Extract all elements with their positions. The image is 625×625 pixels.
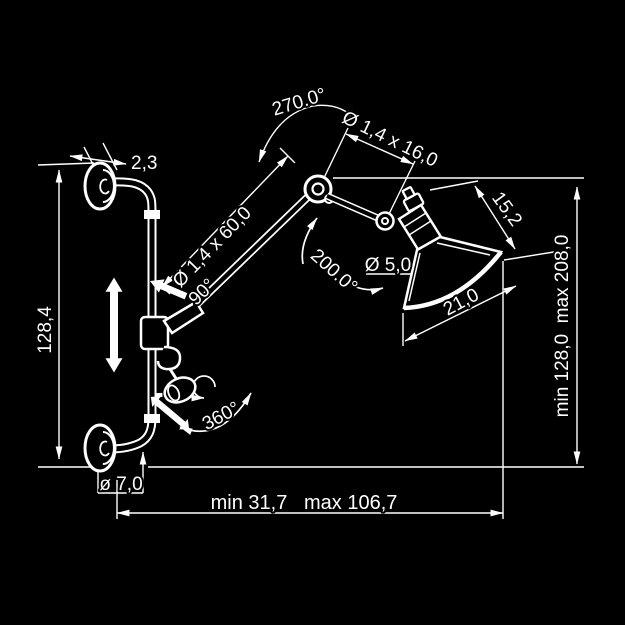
label-tube-diameter: ø 7,0: [99, 474, 142, 495]
label-swivel-angle: 360°: [199, 398, 244, 435]
tube-collar-bottom: [144, 414, 160, 423]
dimension-drawing-canvas: 2,3 128,4 270.0° Ø 1,4 x 60,0 Ø 1,4 x 16…: [0, 0, 625, 625]
elbow-axle: [313, 184, 324, 195]
ext-line: [322, 128, 348, 182]
wall-lamp-dimension-diagram: 2,3 128,4 270.0° Ø 1,4 x 60,0 Ø 1,4 x 16…: [0, 0, 625, 625]
upper-arm-inner: [327, 196, 380, 219]
label-flange-thickness: 2,3: [131, 153, 157, 174]
label-shade-depth: 15,2: [487, 188, 526, 230]
ext-line: [280, 148, 295, 163]
label-upper-arm-spec: Ø 1,4 x 16,0: [339, 107, 441, 171]
slide-up-down-arrow: [106, 278, 123, 373]
arc-head-tilt-lower: [356, 287, 383, 290]
label-reach-range: min 31,7 max 106,7: [211, 492, 398, 514]
label-lower-arm-spec: Ø 1,4 x 60,0: [169, 203, 256, 292]
lamp-body: [85, 163, 501, 471]
label-head-tilt-angle: 200.0°: [306, 245, 361, 298]
wall-flange-bottom: [85, 425, 115, 471]
head-axle: [382, 218, 388, 224]
label-elbow-rotation: 270.0°: [270, 84, 329, 120]
ext-line: [38, 163, 94, 165]
clamp-hook: [158, 347, 180, 369]
label-post-length: 128,4: [35, 306, 56, 354]
label-height-range: min 128,0 max 208,0: [552, 235, 573, 418]
dimension-lines: [38, 105, 584, 519]
wall-flange-top: [85, 163, 115, 209]
label-socket-diameter: Ø 5,0: [365, 255, 411, 276]
tube-collar-top: [144, 210, 160, 219]
ext-line: [430, 181, 478, 190]
